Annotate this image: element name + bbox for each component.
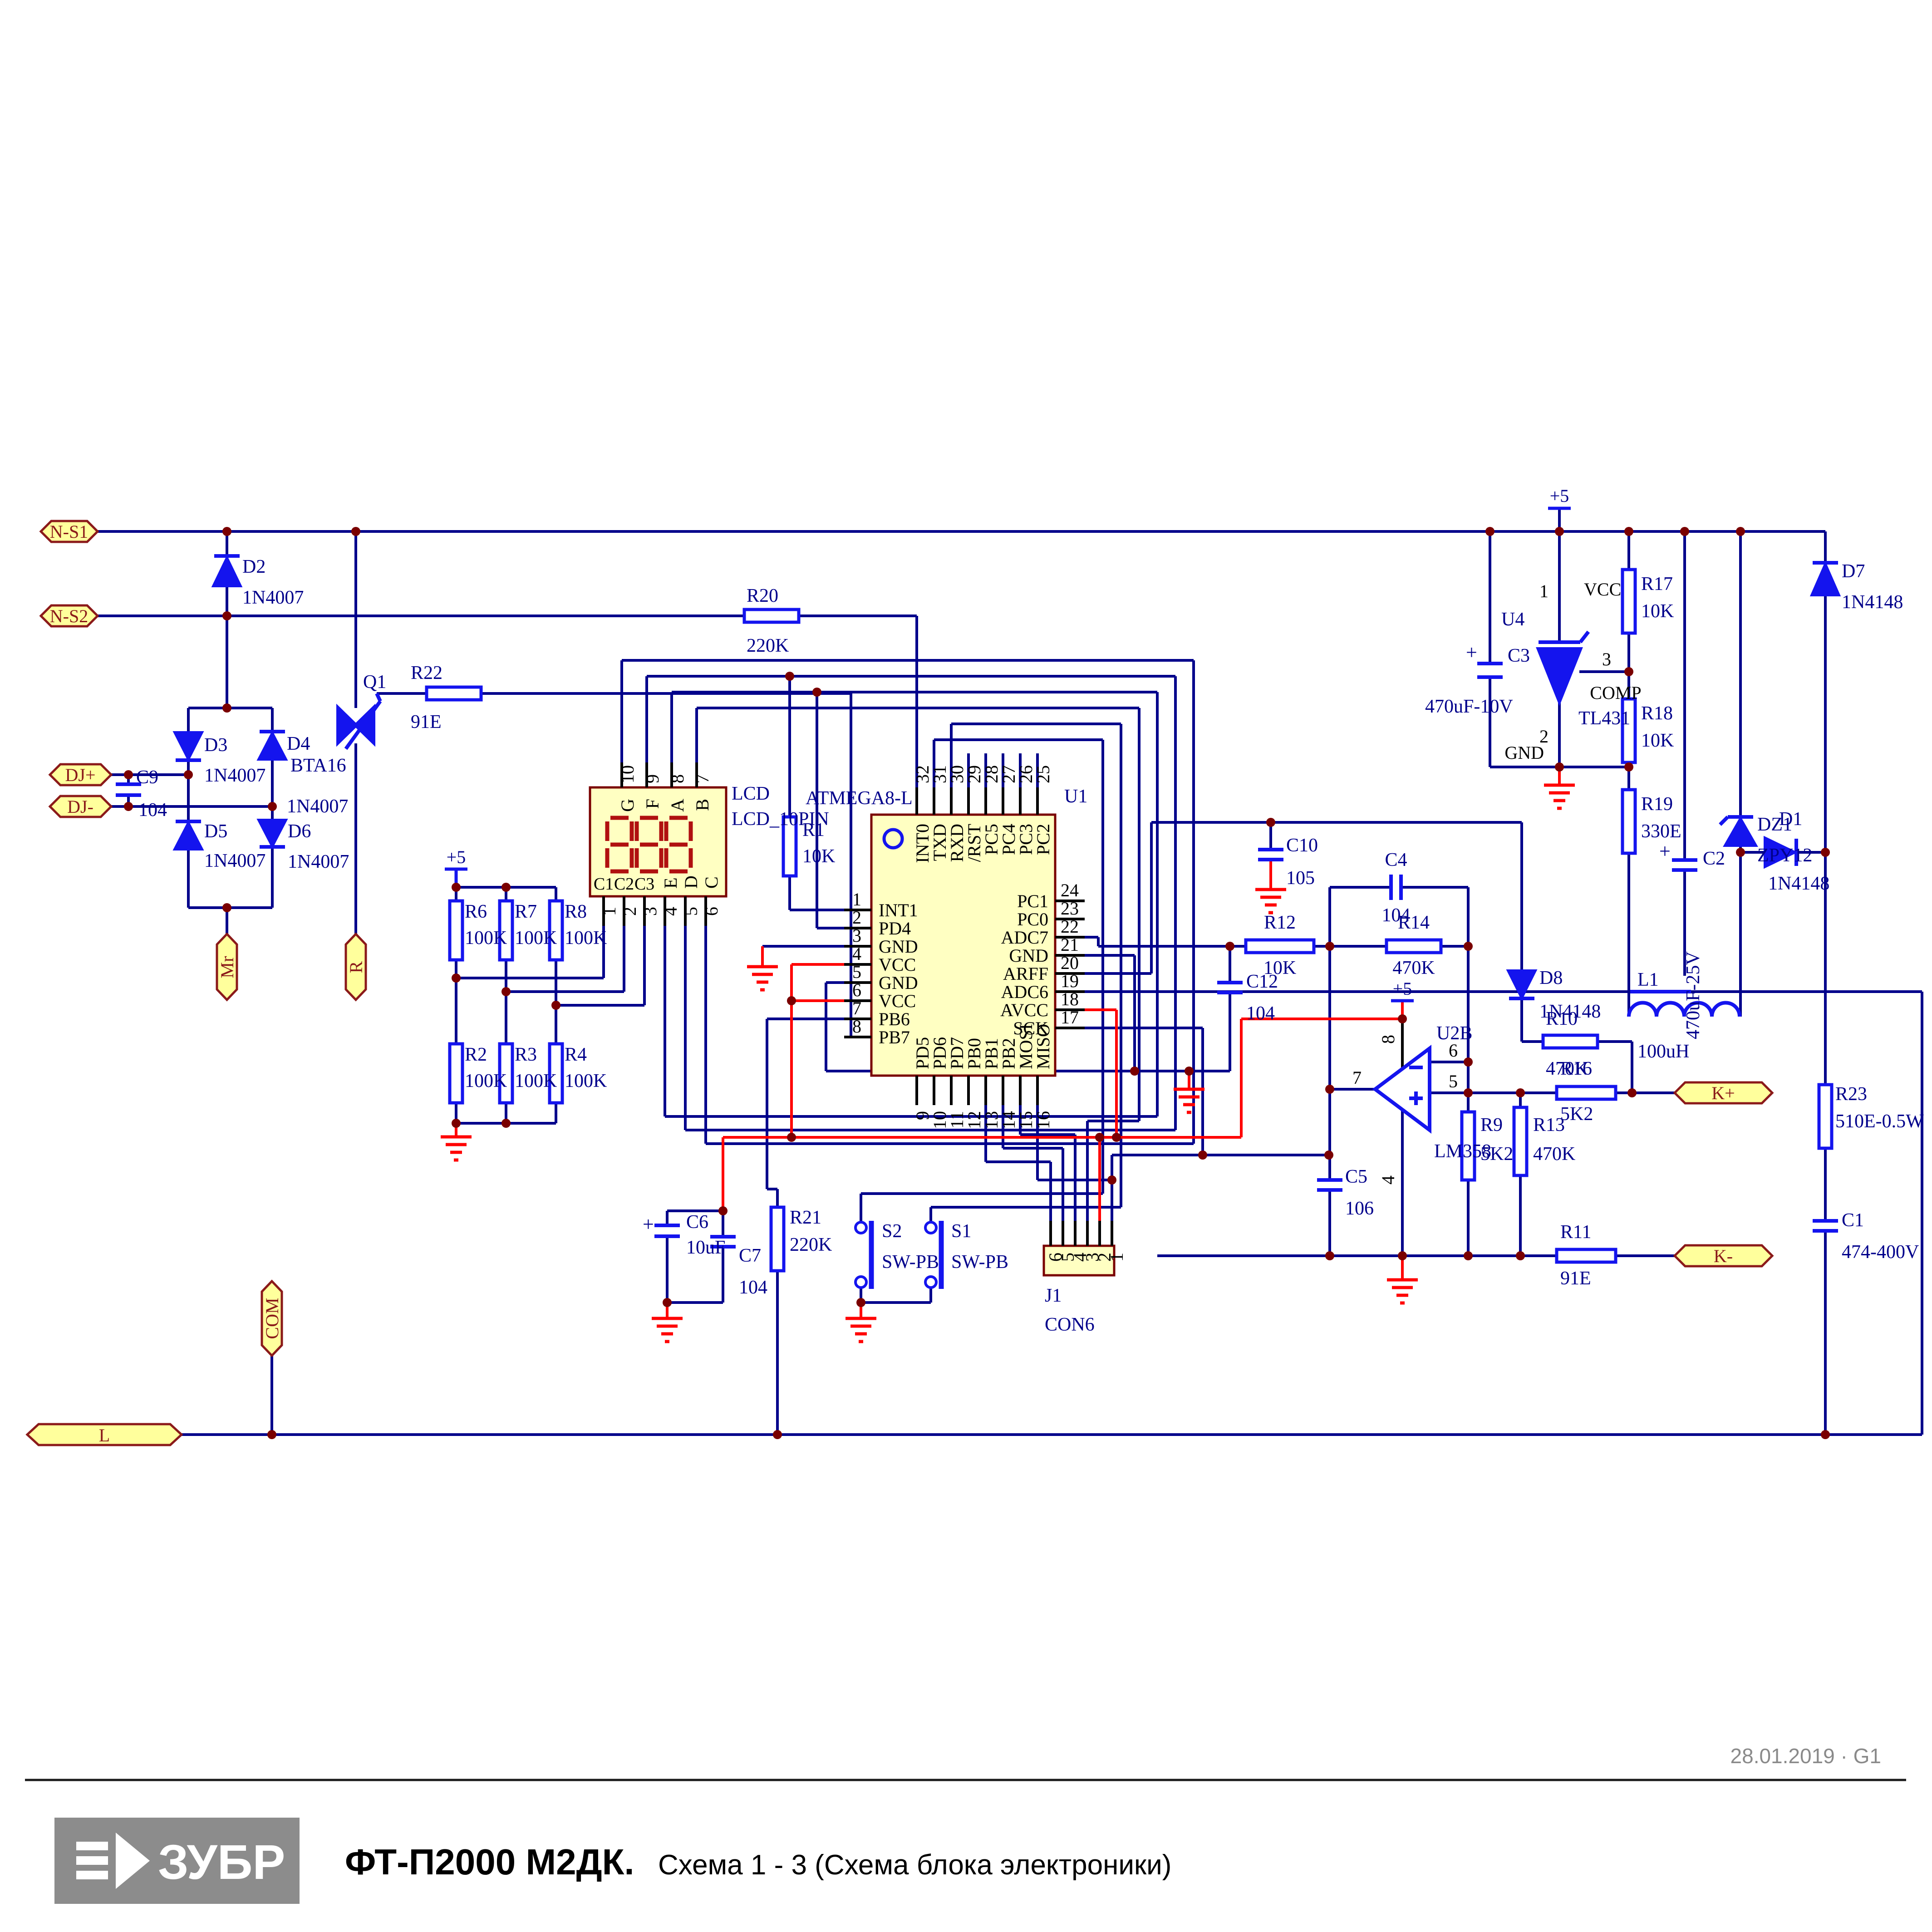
junction-dot <box>1516 1088 1525 1097</box>
flag-mr-label: Mr <box>217 956 237 978</box>
label: SW-PB <box>882 1252 939 1273</box>
label: 105 <box>1286 868 1315 889</box>
rect-shape <box>76 1842 108 1850</box>
junction-dot <box>856 1298 865 1307</box>
u1-right-label: GND <box>1009 945 1048 966</box>
label: 10K <box>1641 730 1674 751</box>
zubr-logo-text: ЗУБР <box>158 1834 285 1889</box>
label: 100uH <box>1637 1041 1689 1062</box>
u1-left-label: PD4 <box>879 918 911 939</box>
u1-bottom-label: MISO <box>1033 1024 1053 1069</box>
junction-dot <box>1464 1088 1473 1097</box>
u1-top-num: 25 <box>1033 765 1053 783</box>
flag-km-label: K- <box>1714 1246 1733 1266</box>
junction-dot <box>1464 1057 1473 1067</box>
junction-dot <box>268 802 277 811</box>
u1-left-num: 6 <box>852 980 861 1000</box>
u4-pin2-label: GND <box>1504 742 1544 763</box>
label: 470K <box>1392 958 1435 978</box>
label: 474-400V <box>1842 1242 1919 1263</box>
label: R18 <box>1641 703 1673 724</box>
lcd-bottom-num: 4 <box>660 907 681 916</box>
junction-dot <box>1736 527 1745 536</box>
label: 104 <box>138 800 167 821</box>
switch-S2-contact <box>855 1222 866 1233</box>
junction-dot <box>1225 942 1234 951</box>
label: D4 <box>287 733 310 754</box>
label: 10K <box>802 846 835 867</box>
u1-left-num: 8 <box>852 1016 861 1037</box>
lcd-letter-label: E <box>660 878 681 889</box>
u1-left-label: GND <box>879 936 918 957</box>
diode-D6 <box>260 821 285 845</box>
label: 220K <box>790 1234 832 1255</box>
u2b-pin4-num: 4 <box>1378 1175 1398 1185</box>
u1-right-num: 23 <box>1061 898 1079 919</box>
junction-dot <box>1324 1150 1333 1160</box>
diode-D2 <box>214 559 240 585</box>
label: 1N4007 <box>287 796 348 817</box>
u4-pin3-num: 3 <box>1602 649 1611 669</box>
label: 100K <box>465 1071 507 1091</box>
date-note: 28.01.2019 · G1 <box>1730 1744 1881 1768</box>
junction-dot <box>787 996 796 1005</box>
lcd-cc-label: C3 <box>634 875 654 894</box>
label: U4 <box>1501 609 1524 630</box>
ground-icon <box>652 1318 683 1342</box>
label: 106 <box>1345 1198 1374 1219</box>
label: R2 <box>465 1044 487 1065</box>
flag-djm-label: DJ- <box>67 796 93 817</box>
junction-dot <box>1736 848 1745 857</box>
lcd-top-label: B <box>692 799 713 811</box>
junction-dot <box>718 1206 728 1215</box>
resistor-R6 <box>450 901 462 960</box>
resistor-R19 <box>1622 790 1635 853</box>
u1-right-num: 18 <box>1061 989 1079 1009</box>
junction-dot <box>1627 1088 1637 1097</box>
label: LCD_10PIN <box>732 809 829 830</box>
label: R3 <box>515 1044 537 1065</box>
label: 5K2 <box>1560 1104 1593 1125</box>
junction-dot <box>1112 1133 1121 1142</box>
resistor-R10 <box>1543 1035 1598 1048</box>
u1-left-label: GND <box>879 973 918 993</box>
path-shape <box>1539 632 1588 642</box>
resistor-R13 <box>1514 1107 1527 1175</box>
label: J1 <box>1045 1285 1062 1306</box>
lcd-top-label: A <box>667 799 688 812</box>
u1-right-label: ADC7 <box>1001 927 1048 948</box>
label: 470uF-25V <box>1683 951 1704 1039</box>
label: C3 <box>1508 645 1530 666</box>
label: 91E <box>411 712 442 732</box>
label: LCD <box>732 783 770 804</box>
label: 10K <box>1641 601 1674 622</box>
label: 100K <box>565 1071 607 1091</box>
junction-dot <box>1555 762 1564 772</box>
label: C2 <box>1703 848 1725 869</box>
flag-ns1-label: N-S1 <box>50 521 88 542</box>
plus-sign: + <box>643 1213 654 1235</box>
u1-right-label: AVCC <box>1000 1000 1048 1020</box>
p5-text: +5 <box>1550 486 1569 506</box>
flag-kp-label: K+ <box>1711 1083 1735 1103</box>
label: L1 <box>1637 969 1659 990</box>
label: C4 <box>1385 850 1407 870</box>
junction-dot <box>1485 527 1494 536</box>
label: 100K <box>465 928 507 949</box>
label: R13 <box>1533 1115 1565 1136</box>
label: C1 <box>1842 1210 1864 1231</box>
u1-right-num: 24 <box>1061 880 1079 900</box>
lcd-letter-label: D <box>681 875 701 889</box>
u1-bottom-num: 16 <box>1033 1111 1053 1129</box>
u2b-pin5-num: 5 <box>1449 1071 1458 1091</box>
label: 1N4148 <box>1842 592 1903 613</box>
label: 5K2 <box>1480 1144 1513 1165</box>
junction-dot <box>1464 1251 1473 1260</box>
label: BTA16 <box>290 755 346 776</box>
junction-dot <box>1266 818 1275 827</box>
p5-text: +5 <box>1393 978 1412 999</box>
label: D8 <box>1539 968 1563 988</box>
junction-dot <box>1680 527 1689 536</box>
label: 10K <box>1263 958 1296 978</box>
label: D3 <box>204 735 227 756</box>
junction-dot <box>351 527 360 536</box>
flag-r-label: R <box>346 961 366 973</box>
label: 100K <box>515 928 557 949</box>
junction-dot <box>1624 762 1633 772</box>
junction-dot <box>1555 527 1564 536</box>
flag-com-label: COM <box>262 1298 282 1339</box>
label: CON6 <box>1045 1314 1095 1335</box>
lcd-bottom-num: 3 <box>640 907 660 916</box>
label: R16 <box>1560 1058 1592 1079</box>
label: D2 <box>242 556 265 577</box>
label: U1 <box>1064 786 1087 807</box>
u1-left-label: VCC <box>879 991 916 1011</box>
label: R6 <box>465 901 487 922</box>
label: S1 <box>951 1221 971 1242</box>
junction-dot <box>1624 527 1633 536</box>
label: 100K <box>515 1071 557 1091</box>
junction-dot <box>184 770 193 779</box>
u1-left-label: VCC <box>879 954 916 975</box>
junction-dot <box>812 688 821 697</box>
label: D6 <box>288 821 311 842</box>
u1-right-label: PC0 <box>1017 909 1048 929</box>
switch-S1-contact <box>925 1222 936 1233</box>
junction-dot <box>1398 1014 1407 1023</box>
lcd-top-num: 8 <box>667 774 688 783</box>
u1-right-label: ARFF <box>1003 964 1048 984</box>
label: 1N4007 <box>288 851 349 872</box>
junction-dot <box>267 1430 276 1439</box>
label: 104 <box>739 1277 767 1298</box>
j1-pin-num: 1 <box>1106 1253 1127 1262</box>
label: R23 <box>1835 1084 1867 1105</box>
capacitor-C5 <box>1317 1180 1342 1190</box>
label: 470K <box>1533 1144 1575 1165</box>
junction-dot <box>1107 1175 1116 1185</box>
rect-shape <box>76 1871 108 1879</box>
label: ATMEGA8-L <box>806 788 913 809</box>
label: D7 <box>1842 561 1865 582</box>
label: C10 <box>1286 835 1318 856</box>
u2b-pin6-num: 6 <box>1449 1040 1458 1061</box>
junction-dot <box>787 1133 796 1142</box>
label: 330E <box>1641 821 1681 842</box>
label: R12 <box>1264 912 1296 933</box>
u1-right-num: 22 <box>1061 916 1079 937</box>
wire-analog <box>1085 822 1922 1435</box>
u1-left-label: PB6 <box>879 1009 910 1029</box>
ground-icon <box>441 1137 472 1160</box>
label: 220K <box>747 635 789 656</box>
junction-dot <box>501 883 511 892</box>
u1-left-num: 4 <box>852 944 861 964</box>
lcd-top-num: 9 <box>642 774 663 783</box>
u4-pin1-num: 1 <box>1539 581 1549 601</box>
flag-ns2-label: N-S2 <box>50 606 88 626</box>
junction-dot <box>452 973 461 983</box>
u1-left-num: 1 <box>852 889 861 909</box>
junction-dot <box>501 1119 511 1128</box>
label: C7 <box>739 1245 761 1266</box>
shunt-U4 <box>1539 649 1580 701</box>
u1-left-num: 3 <box>852 925 861 946</box>
label: R20 <box>747 585 778 606</box>
rect-shape <box>76 1856 108 1865</box>
capacitor-C2 <box>1672 860 1697 870</box>
lcd-bottom-num: 6 <box>701 907 722 916</box>
label: 1N4007 <box>242 587 304 608</box>
junction-dot <box>1185 1067 1194 1076</box>
u2b-pin7-num: 7 <box>1352 1067 1362 1088</box>
label: SW-PB <box>951 1252 1008 1273</box>
junction-dot <box>1516 1251 1525 1260</box>
junction-dot <box>501 987 511 996</box>
lcd-bottom-num: 1 <box>599 907 619 916</box>
capacitor-C3 <box>1477 664 1503 677</box>
u1-left-label: PB7 <box>879 1027 910 1047</box>
label: R21 <box>790 1207 821 1228</box>
ground-icon <box>1174 1089 1204 1112</box>
capacitor-C10 <box>1258 850 1283 860</box>
flag-l-label: L <box>99 1425 110 1445</box>
zener-DZ1 <box>1726 820 1755 845</box>
label: 1N4148 <box>1768 873 1829 894</box>
label: 100K <box>565 928 607 949</box>
label: C5 <box>1345 1166 1367 1187</box>
junction-dot <box>452 883 461 892</box>
u4-pin3-label: COMP <box>1590 683 1641 703</box>
junction-dot <box>1398 1251 1407 1260</box>
u1-top-label: PC2 <box>1033 824 1053 855</box>
u1-right-num: 19 <box>1061 971 1079 991</box>
u1-right-num: 20 <box>1061 953 1079 973</box>
resistor-R2 <box>450 1044 462 1103</box>
capacitor-C6 <box>654 1225 680 1236</box>
page-title-sub: Схема 1 - 3 (Схема блока электроники) <box>658 1849 1171 1881</box>
label: R17 <box>1641 574 1673 595</box>
label: 104 <box>1246 1003 1275 1024</box>
label: 470uF-10V <box>1425 696 1513 717</box>
junction-dot <box>452 1119 461 1128</box>
junction-dot <box>1095 1133 1104 1142</box>
u1-right-label: ADC6 <box>1001 982 1048 1002</box>
label: C9 <box>136 767 158 788</box>
resistor-R12 <box>1246 940 1314 953</box>
resistor-R11 <box>1557 1249 1616 1262</box>
lcd-top-label: G <box>617 799 638 812</box>
resistor-R23 <box>1819 1085 1832 1148</box>
capacitor-C1 <box>1813 1221 1838 1231</box>
plus-sign: + <box>1466 641 1477 664</box>
label: R4 <box>565 1044 587 1065</box>
junction-dot <box>1198 1150 1207 1160</box>
label: Q1 <box>363 672 386 693</box>
page-title-model: ФТ-П2000 М2ДК. <box>345 1842 634 1882</box>
label: D5 <box>204 821 227 842</box>
junction-dot <box>222 611 231 620</box>
u1-left-num: 2 <box>852 907 861 928</box>
label: 510E-0.5W <box>1835 1111 1924 1132</box>
label: C6 <box>686 1212 708 1233</box>
resistor-R16 <box>1557 1086 1616 1099</box>
label: ZPY12 <box>1757 845 1812 866</box>
u4-pin1-label: VCC <box>1584 579 1621 600</box>
label: 1N4007 <box>204 765 265 786</box>
label: 91E <box>1560 1268 1591 1289</box>
junction-dot <box>222 703 231 713</box>
switch-S2-contact <box>855 1277 866 1288</box>
ground-icon <box>747 967 778 990</box>
junction-dot <box>124 802 133 811</box>
junction-dot <box>1624 667 1633 676</box>
label: S2 <box>882 1221 902 1242</box>
junction-dot <box>551 1001 560 1010</box>
plus-sign: + <box>1659 840 1671 862</box>
junction-dot <box>124 770 133 779</box>
junction-dot <box>1821 1430 1830 1439</box>
lcd-bottom-num: 2 <box>619 907 640 916</box>
junction-dot <box>773 1430 782 1439</box>
resistor-R22 <box>427 687 481 700</box>
junction-dot <box>1464 942 1473 951</box>
junction-dot <box>1325 1085 1334 1094</box>
u1-left-num: 7 <box>852 998 861 1018</box>
junction-dot <box>1130 1067 1139 1076</box>
ground-icon <box>1387 1280 1418 1303</box>
label: R8 <box>565 901 587 922</box>
junction-dot <box>1821 848 1830 857</box>
lcd-top-num: 7 <box>692 774 713 783</box>
label: D1 <box>1779 809 1802 830</box>
diode-D5 <box>176 824 201 849</box>
label: R22 <box>411 663 442 683</box>
ground-icon <box>1255 890 1286 913</box>
junction-dot <box>663 1298 672 1307</box>
label: R10 <box>1546 1008 1578 1029</box>
lcd-top-num: 10 <box>617 765 638 783</box>
label: TL431 <box>1578 708 1630 729</box>
flag-djp-label: DJ+ <box>65 765 95 785</box>
junction-dot <box>785 672 794 681</box>
label: 104 <box>1382 905 1411 926</box>
label: R11 <box>1560 1222 1591 1243</box>
label: 1N4007 <box>204 850 265 871</box>
label: 10uF <box>686 1237 725 1258</box>
u1-right-num: 17 <box>1061 1007 1079 1027</box>
junction-dot <box>222 527 231 536</box>
resistor-R20 <box>744 610 799 622</box>
ground-icon <box>846 1318 876 1342</box>
u1-right-label: PC1 <box>1017 891 1048 911</box>
u1-right-num: 21 <box>1061 934 1079 955</box>
resistor-R14 <box>1386 940 1441 953</box>
p5-text: +5 <box>447 847 466 867</box>
diode-D7 <box>1813 565 1838 595</box>
label: R7 <box>515 901 537 922</box>
junction-dot <box>1325 1251 1334 1260</box>
lcd-cc-label: C2 <box>614 875 634 894</box>
label: R9 <box>1480 1115 1503 1136</box>
u1-left-num: 5 <box>852 962 861 982</box>
u2b-pin8-num: 8 <box>1378 1035 1398 1044</box>
label: R19 <box>1641 794 1673 815</box>
junction-dot <box>222 903 231 912</box>
resistor-R21 <box>771 1207 784 1271</box>
diode-D3 <box>176 733 201 758</box>
diode-D4 <box>260 734 285 759</box>
lcd-letter-label: C <box>701 876 722 889</box>
capacitor-C4 <box>1391 875 1401 900</box>
capacitor-C12 <box>1217 983 1243 993</box>
switch-S1-contact <box>925 1277 936 1288</box>
lcd-cc-label: C1 <box>594 875 614 894</box>
ground-icon <box>1544 785 1575 808</box>
schematic-page: N-S1 N-S2 DJ+ DJ- K+ K- Mr R COM L D2 1N… <box>0 0 1932 1932</box>
schematic-canvas: N-S1 N-S2 DJ+ DJ- K+ K- Mr R COM L D2 1N… <box>0 0 1932 1932</box>
u1-left-label: INT1 <box>879 900 918 920</box>
lcd-top-label: F <box>642 799 663 809</box>
opamp-plus-icon <box>1409 1091 1423 1105</box>
resistor-R17 <box>1622 570 1635 633</box>
resistors <box>427 570 1832 1271</box>
lcd-bottom-num: 5 <box>681 907 701 916</box>
junction-dot <box>1325 942 1334 951</box>
